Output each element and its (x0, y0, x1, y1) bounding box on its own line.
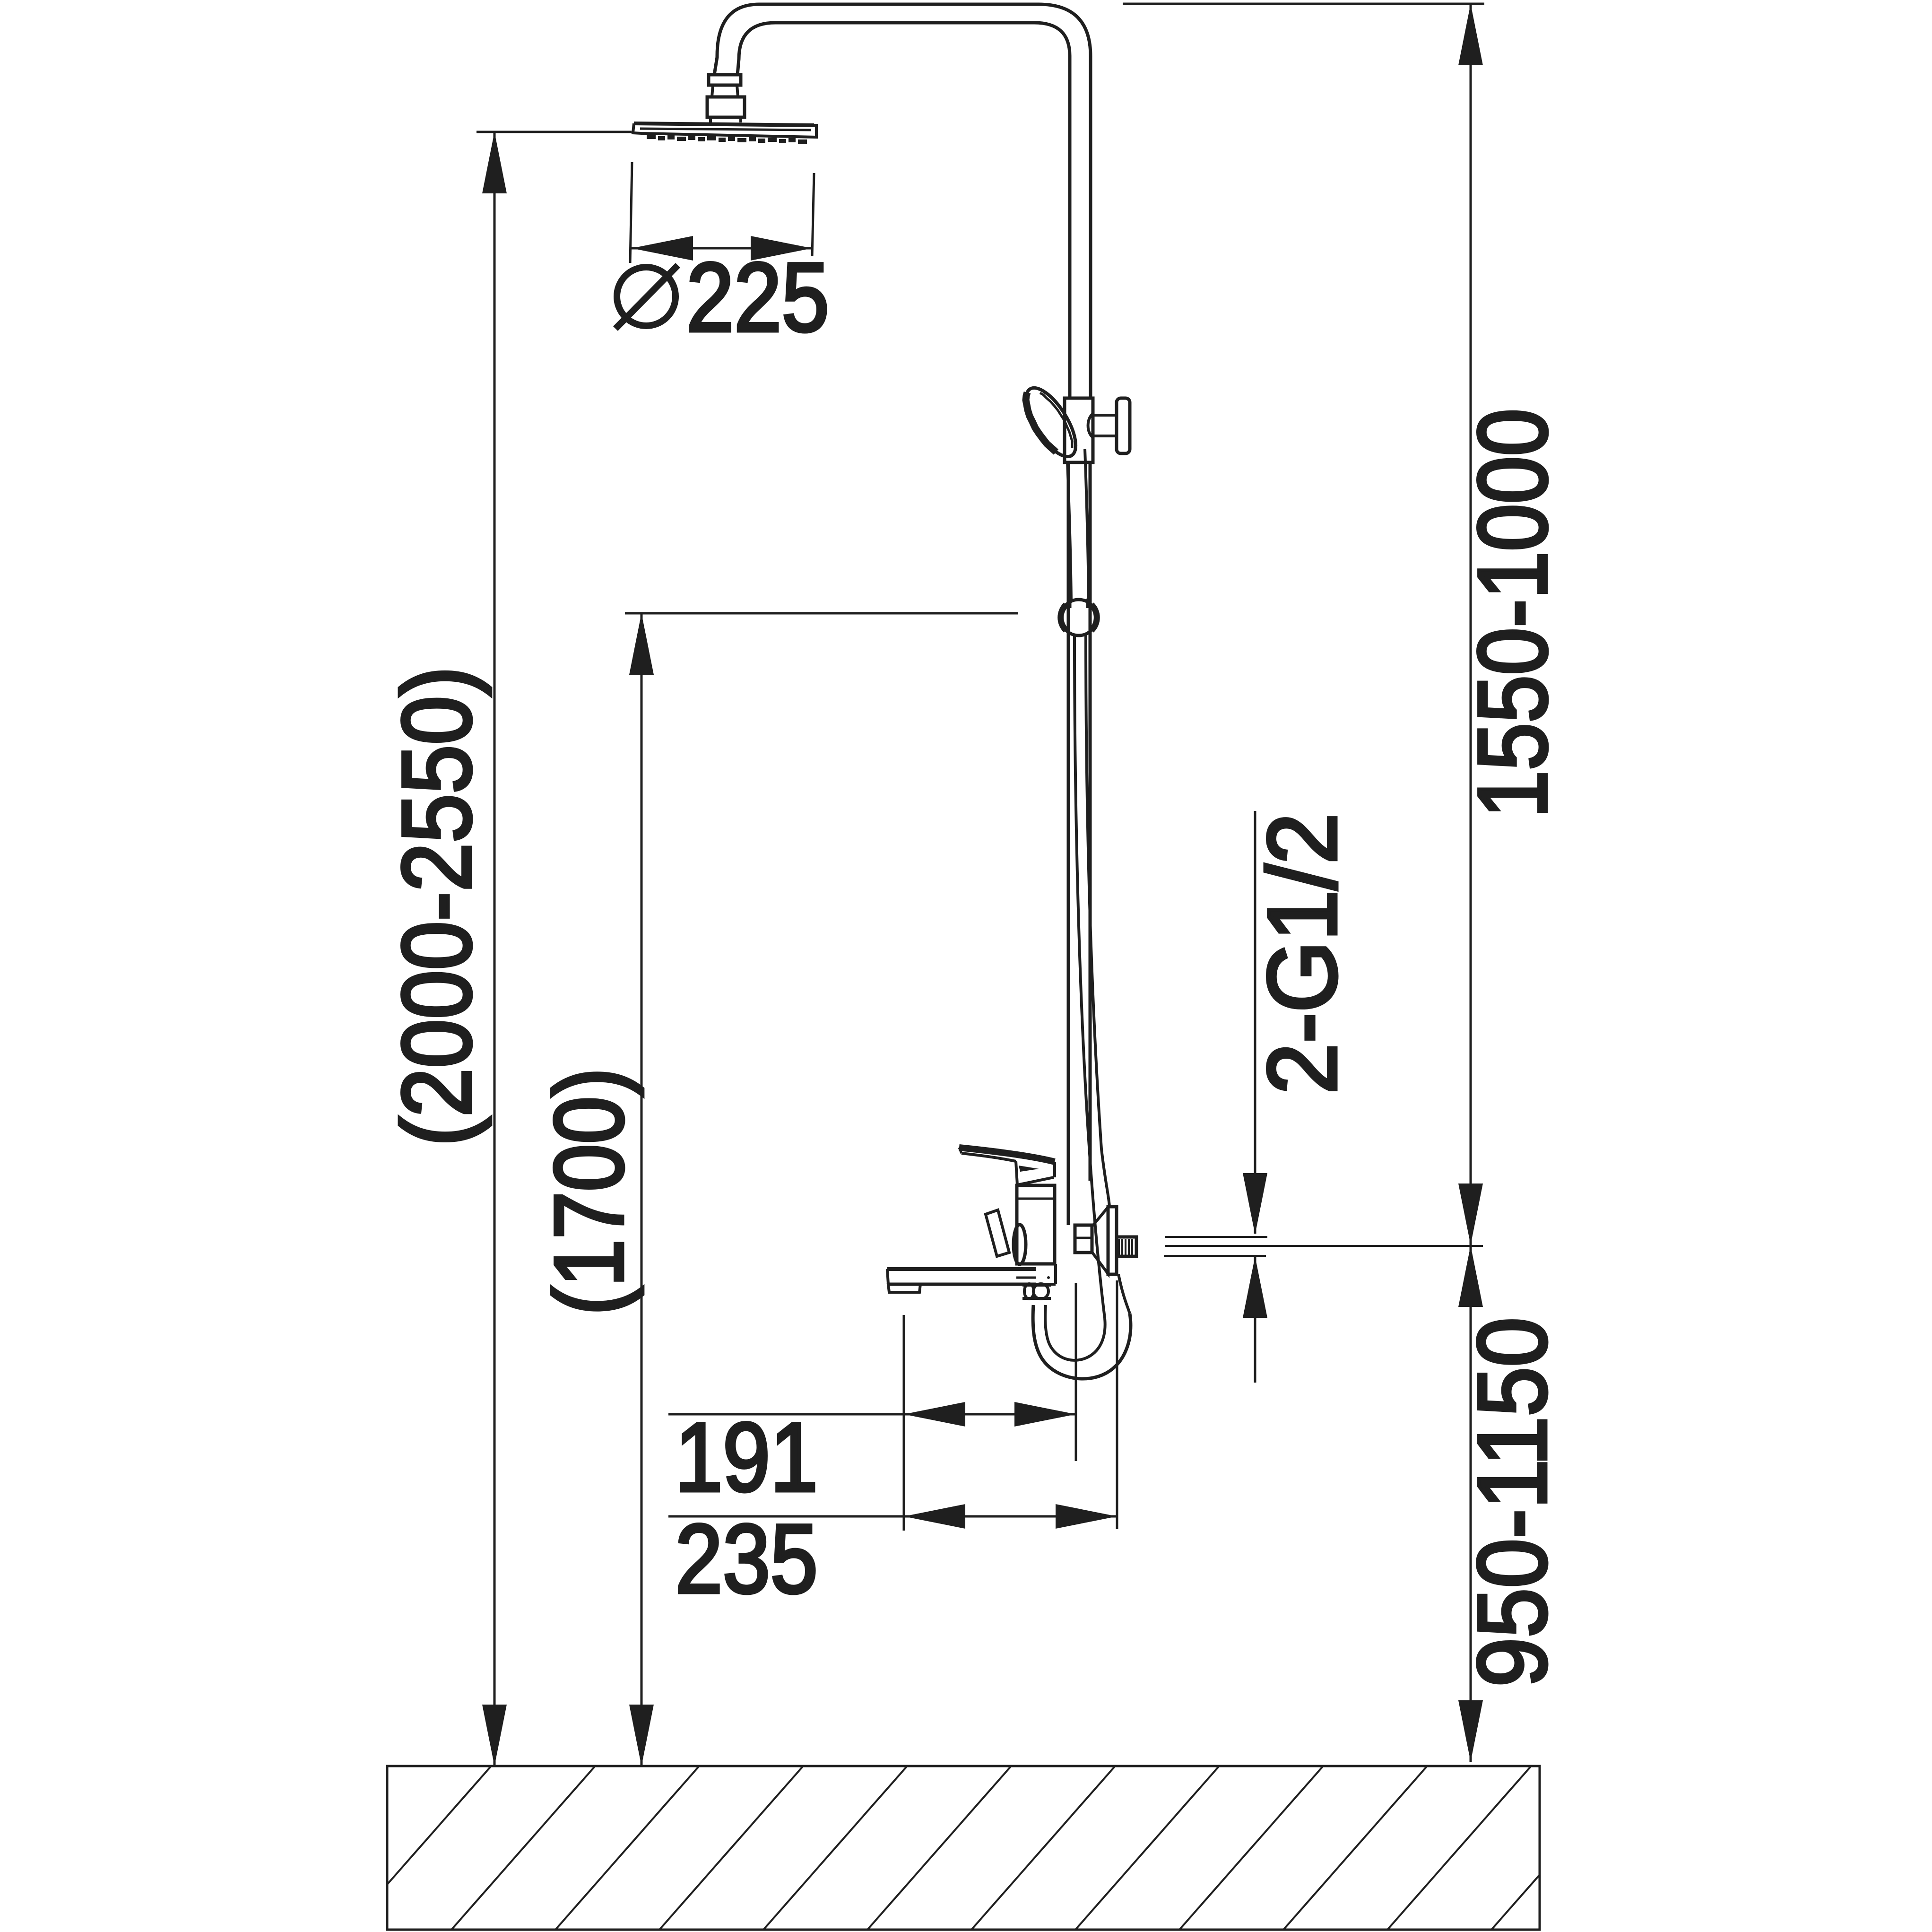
svg-text:(1700): (1700) (535, 1068, 644, 1315)
svg-text:2-G1/2: 2-G1/2 (1247, 813, 1357, 1095)
svg-text:1550-1000: 1550-1000 (1458, 409, 1568, 818)
svg-text:950-1150: 950-1150 (1457, 1317, 1567, 1687)
svg-text:191: 191 (675, 1403, 818, 1512)
svg-text:235: 235 (675, 1505, 818, 1614)
svg-text:225: 225 (686, 243, 829, 352)
svg-text:(2000-2550): (2000-2550) (382, 667, 491, 1147)
